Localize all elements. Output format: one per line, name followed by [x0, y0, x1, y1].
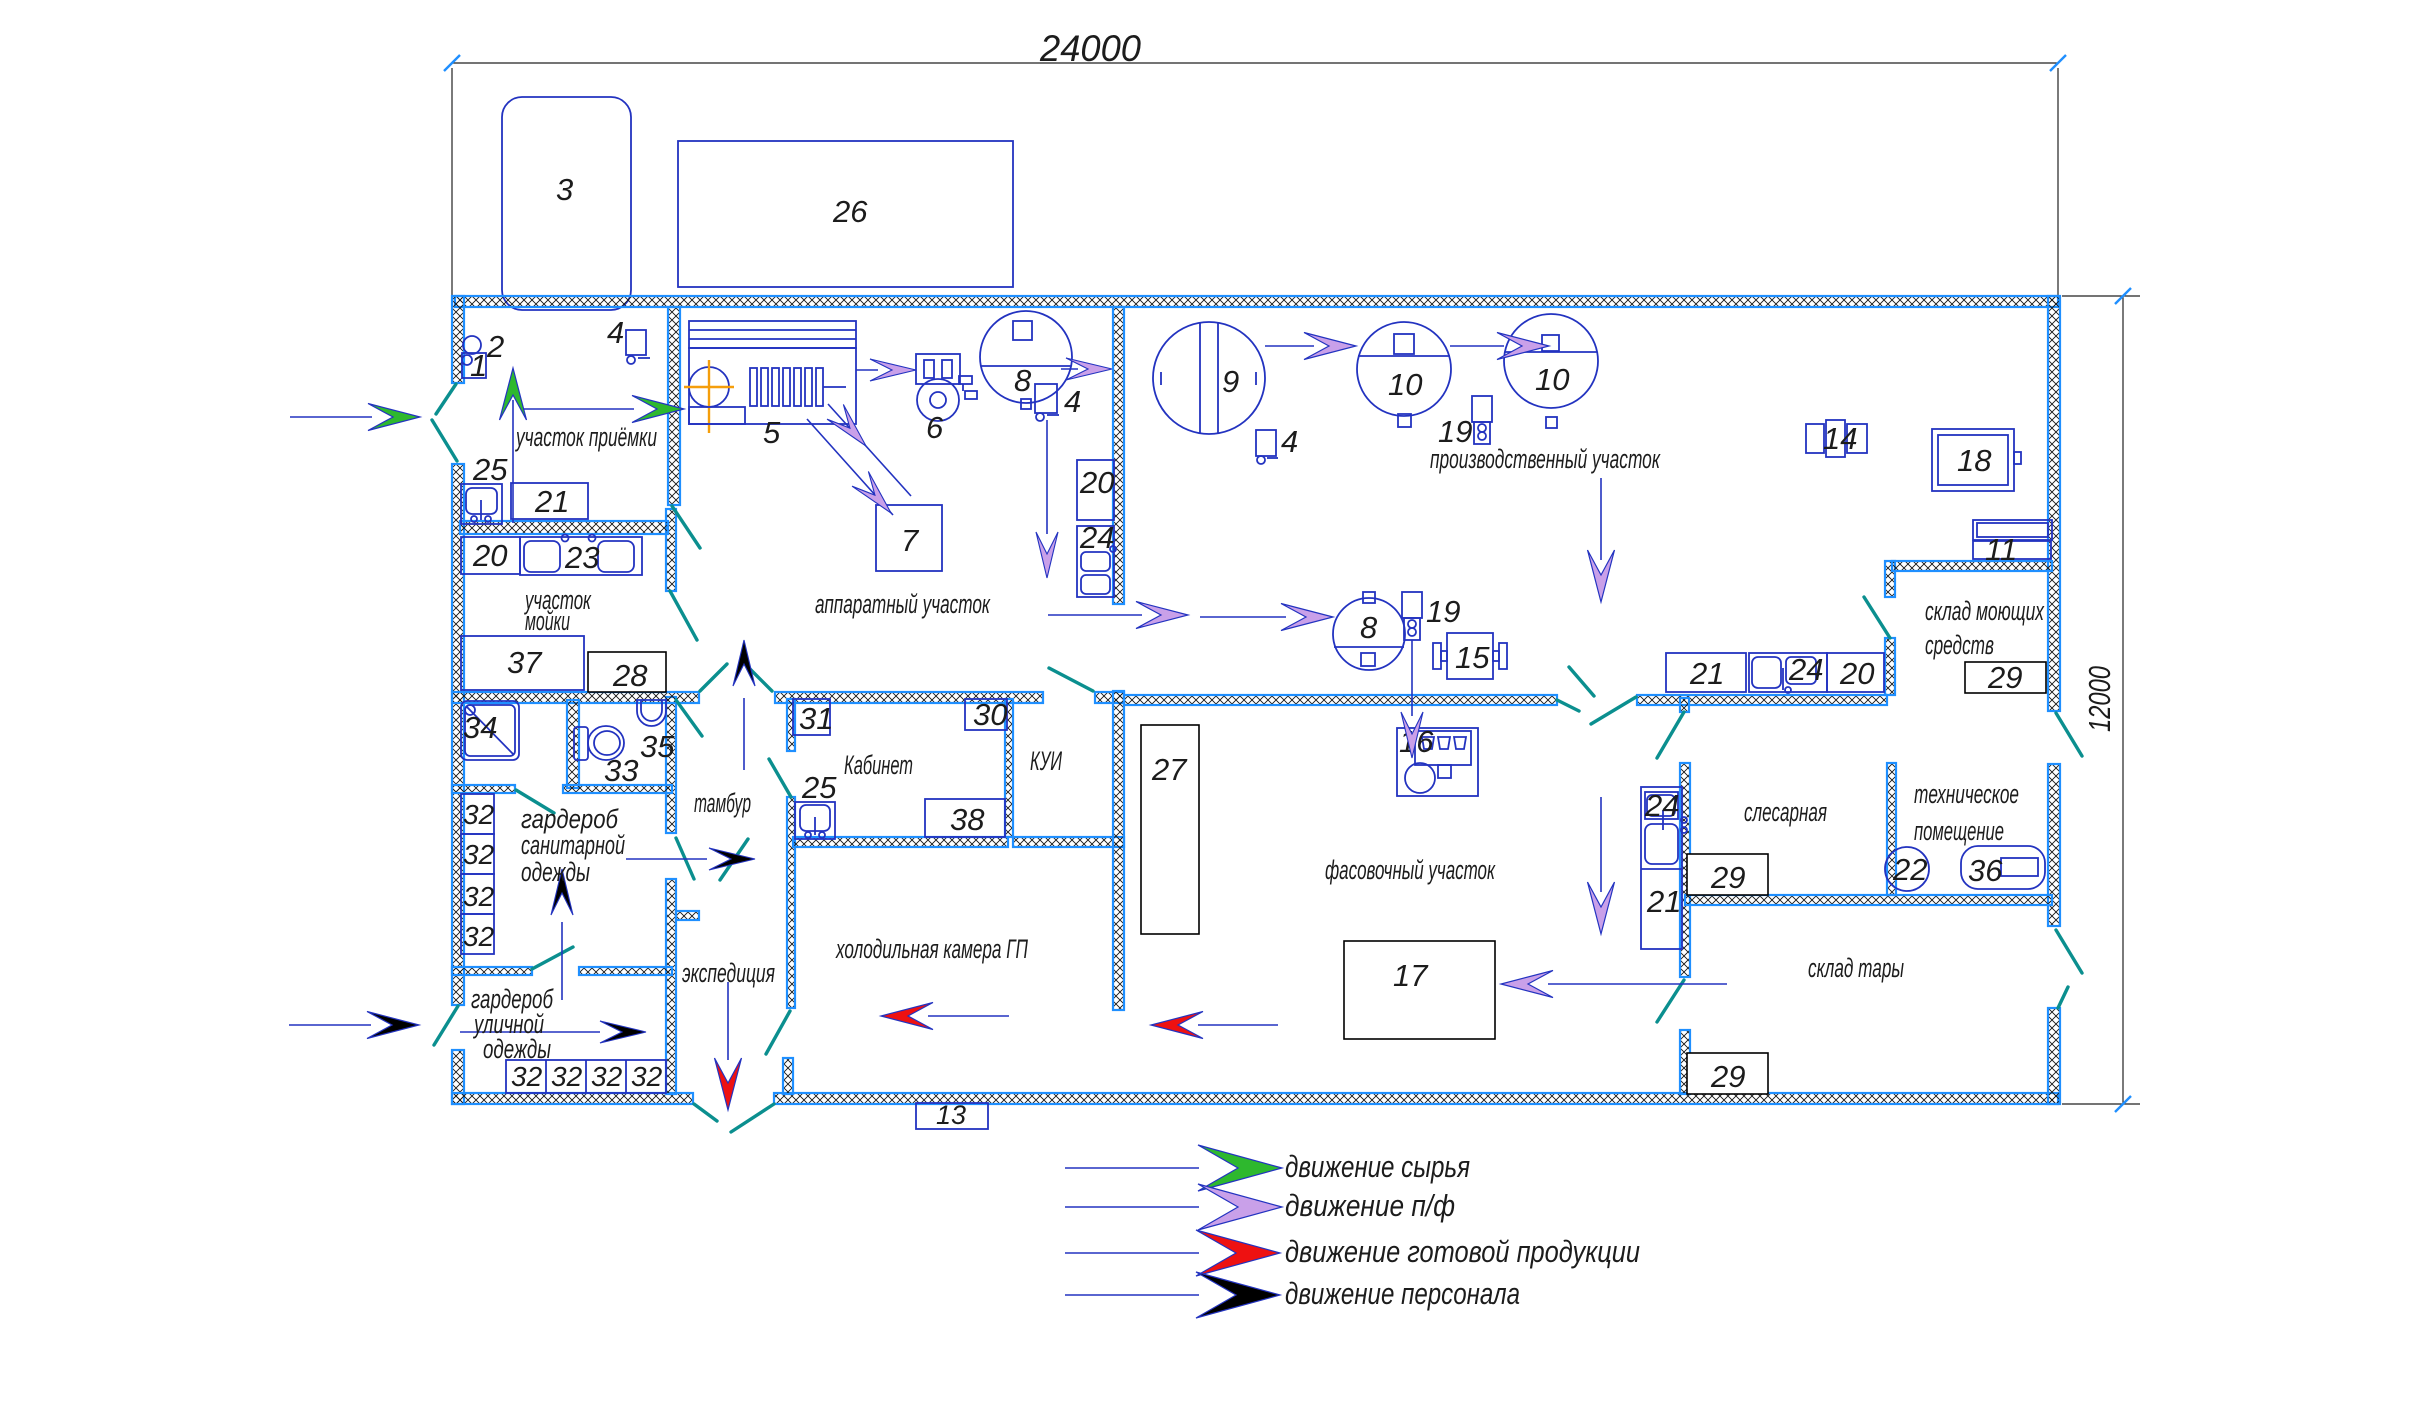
svg-text:4: 4 [607, 315, 624, 350]
svg-text:6: 6 [926, 410, 944, 445]
svg-text:36: 36 [1968, 853, 2003, 888]
svg-text:движение п/ф: движение п/ф [1285, 1188, 1455, 1223]
svg-text:31: 31 [799, 701, 833, 736]
svg-text:аппаратный участок: аппаратный участок [815, 589, 991, 619]
svg-text:33: 33 [604, 753, 638, 788]
svg-text:экспедиция: экспедиция [682, 958, 775, 988]
svg-text:28: 28 [612, 658, 648, 693]
svg-text:27: 27 [1151, 752, 1188, 787]
svg-text:слесарная: слесарная [1744, 797, 1827, 827]
svg-text:участок приёмки: участок приёмки [515, 422, 657, 452]
svg-text:32: 32 [463, 839, 495, 870]
svg-text:21: 21 [534, 484, 569, 519]
svg-text:холодильная камера ГП: холодильная камера ГП [835, 934, 1029, 964]
svg-text:20: 20 [1839, 656, 1874, 691]
svg-text:санитарной: санитарной [521, 830, 625, 860]
svg-text:КУИ: КУИ [1030, 746, 1062, 776]
svg-text:18: 18 [1957, 443, 1992, 478]
svg-text:8: 8 [1360, 610, 1378, 645]
svg-text:14: 14 [1823, 421, 1857, 456]
svg-text:19: 19 [1426, 594, 1460, 629]
svg-text:32: 32 [463, 799, 495, 830]
svg-text:5: 5 [763, 415, 781, 450]
svg-text:24: 24 [1644, 788, 1679, 823]
svg-text:10: 10 [1388, 367, 1422, 402]
svg-text:24: 24 [1788, 652, 1823, 687]
svg-text:12000: 12000 [2082, 666, 2117, 732]
svg-text:17: 17 [1393, 958, 1429, 993]
svg-text:производственный участок: производственный участок [1430, 444, 1661, 474]
svg-text:13: 13 [936, 1100, 966, 1130]
svg-text:мойки: мойки [525, 606, 570, 636]
svg-text:техническое: техническое [1914, 779, 2019, 809]
svg-text:29: 29 [1710, 860, 1745, 895]
svg-text:средств: средств [1925, 630, 1994, 660]
svg-text:32: 32 [591, 1061, 623, 1092]
svg-text:15: 15 [1455, 640, 1490, 675]
svg-text:20: 20 [472, 538, 507, 573]
svg-text:30: 30 [973, 697, 1007, 732]
svg-text:Кабинет: Кабинет [844, 750, 913, 780]
svg-text:склад тары: склад тары [1808, 953, 1904, 983]
svg-text:20: 20 [1079, 465, 1114, 500]
svg-text:21: 21 [1646, 884, 1681, 919]
svg-text:37: 37 [507, 645, 543, 680]
svg-text:помещение: помещение [1914, 816, 2004, 846]
svg-text:25: 25 [472, 452, 508, 487]
svg-text:21: 21 [1689, 656, 1724, 691]
svg-text:8: 8 [1014, 363, 1032, 398]
svg-text:25: 25 [801, 770, 837, 805]
svg-text:26: 26 [832, 194, 868, 229]
svg-text:3: 3 [556, 172, 573, 207]
svg-text:склад моющих: склад моющих [1925, 596, 2045, 626]
svg-text:4: 4 [1064, 384, 1081, 419]
svg-text:34: 34 [463, 710, 497, 745]
svg-text:35: 35 [640, 729, 675, 764]
svg-text:4: 4 [1281, 424, 1298, 459]
svg-text:29: 29 [1987, 660, 2022, 695]
svg-text:23: 23 [564, 540, 599, 575]
svg-text:32: 32 [511, 1061, 543, 1092]
svg-text:1: 1 [470, 348, 487, 383]
svg-text:10: 10 [1535, 362, 1569, 397]
svg-text:движение персонала: движение персонала [1285, 1276, 1520, 1311]
svg-text:38: 38 [950, 802, 985, 837]
svg-text:32: 32 [631, 1061, 663, 1092]
svg-text:2: 2 [486, 329, 504, 364]
svg-text:7: 7 [901, 523, 920, 558]
svg-text:32: 32 [463, 921, 495, 952]
svg-text:одежды: одежды [483, 1034, 551, 1064]
svg-text:движение сырья: движение сырья [1285, 1149, 1470, 1184]
svg-text:фасовочный участок: фасовочный участок [1325, 855, 1496, 885]
svg-text:11: 11 [1985, 532, 2017, 567]
svg-text:22: 22 [1892, 852, 1927, 887]
svg-text:29: 29 [1710, 1059, 1745, 1094]
svg-text:32: 32 [463, 881, 495, 912]
svg-text:24: 24 [1079, 520, 1114, 555]
svg-text:движение готовой продукции: движение готовой продукции [1285, 1234, 1640, 1269]
svg-text:тамбур: тамбур [694, 788, 751, 818]
svg-text:9: 9 [1222, 364, 1239, 399]
svg-text:одежды: одежды [521, 857, 590, 887]
svg-text:32: 32 [551, 1061, 583, 1092]
svg-text:24000: 24000 [1039, 28, 1141, 69]
